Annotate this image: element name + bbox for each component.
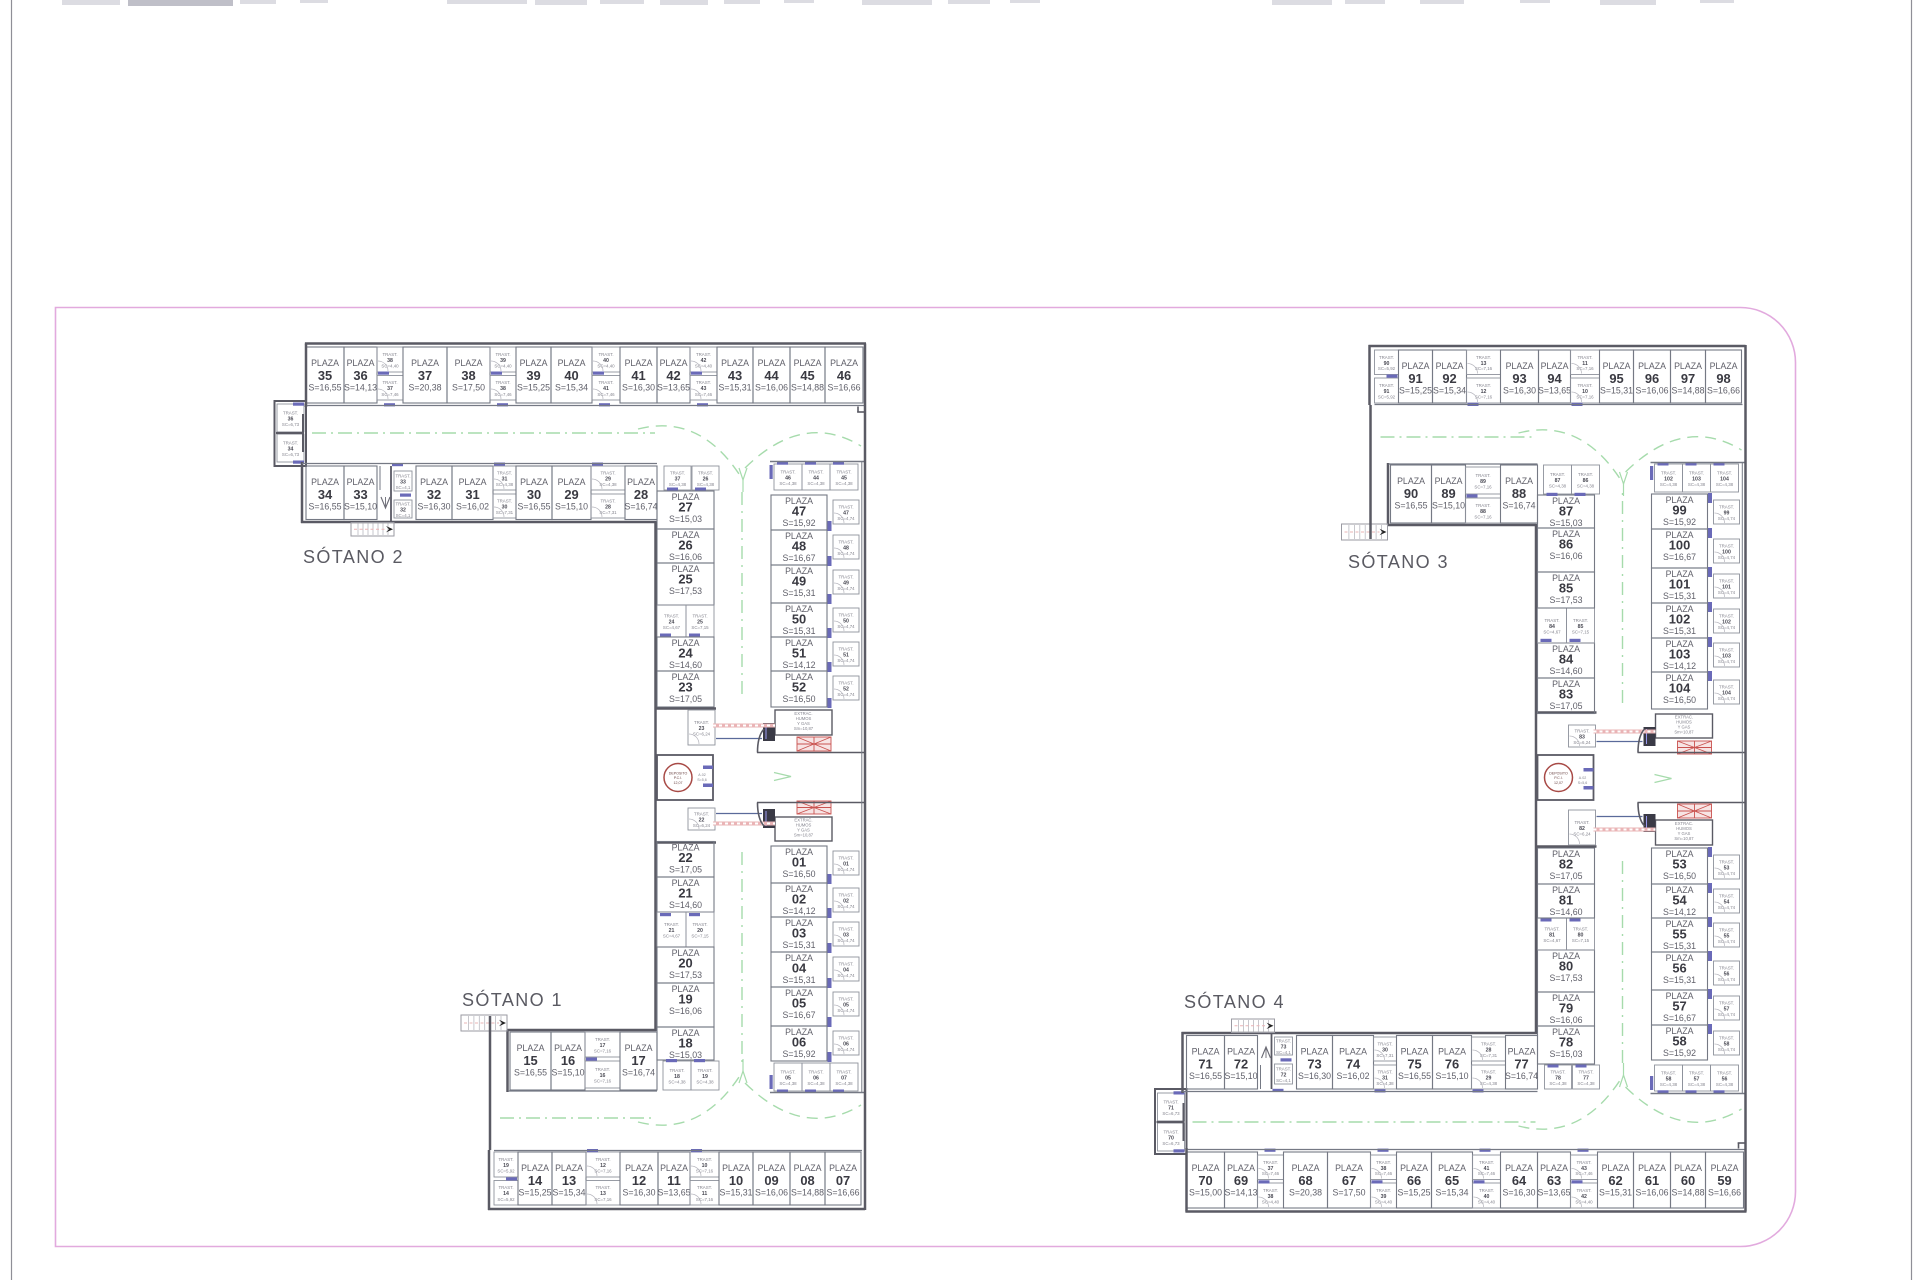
- svg-text:TRAST.: TRAST.: [697, 1157, 712, 1162]
- svg-text:S=16,30: S=16,30: [417, 502, 450, 512]
- svg-text:SC=4,67: SC=4,67: [663, 934, 681, 939]
- svg-text:SC=4,74: SC=4,74: [837, 1047, 855, 1052]
- svg-text:21: 21: [678, 886, 692, 901]
- svg-text:SC=4,1: SC=4,1: [1276, 1078, 1291, 1083]
- svg-text:TRAST.: TRAST.: [595, 1157, 610, 1162]
- svg-text:SC=4,38: SC=4,38: [835, 1081, 853, 1086]
- svg-text:SC=4,74: SC=4,74: [1718, 555, 1736, 560]
- svg-text:TRAST.: TRAST.: [1719, 966, 1734, 971]
- svg-text:SC=4,74: SC=4,74: [1718, 871, 1736, 876]
- svg-text:S=16,66: S=16,66: [1707, 386, 1740, 396]
- svg-text:SC=4,74: SC=4,74: [837, 586, 855, 591]
- svg-text:PLAZA: PLAZA: [1292, 1163, 1320, 1173]
- svg-text:47: 47: [792, 504, 806, 519]
- svg-text:104: 104: [1669, 681, 1691, 696]
- svg-text:PLAZA: PLAZA: [830, 358, 858, 368]
- svg-text:TRAST.: TRAST.: [1163, 1100, 1178, 1105]
- svg-text:S=16,66: S=16,66: [827, 383, 860, 393]
- svg-text:SC=7,31: SC=7,31: [1376, 1053, 1394, 1058]
- svg-text:S=13,65: S=13,65: [1537, 1188, 1570, 1198]
- svg-text:102: 102: [1669, 612, 1691, 627]
- svg-text:SC=4,74: SC=4,74: [1718, 590, 1736, 595]
- svg-text:99: 99: [1672, 503, 1686, 518]
- svg-text:62: 62: [1608, 1173, 1622, 1188]
- svg-text:58: 58: [1672, 1034, 1686, 1049]
- svg-text:S=17,53: S=17,53: [669, 586, 702, 596]
- svg-text:TRAST.: TRAST.: [838, 1036, 853, 1041]
- svg-text:SC=6,73: SC=6,73: [1162, 1141, 1180, 1146]
- svg-text:S=15,03: S=15,03: [1549, 518, 1582, 528]
- svg-text:PLAZA: PLAZA: [1638, 361, 1666, 371]
- svg-text:S=13,65: S=13,65: [657, 1188, 690, 1198]
- svg-text:TRAST.: TRAST.: [664, 614, 679, 619]
- svg-text:PLAZA: PLAZA: [758, 1163, 786, 1173]
- svg-text:SC=4,67: SC=4,67: [663, 625, 681, 630]
- svg-text:44: 44: [764, 368, 779, 383]
- svg-text:PLAZA: PLAZA: [347, 358, 375, 368]
- svg-text:SC=5,92: SC=5,92: [1378, 395, 1396, 400]
- svg-text:77: 77: [1514, 1057, 1528, 1072]
- svg-text:PLAZA: PLAZA: [1506, 361, 1534, 371]
- svg-text:SC=4,74: SC=4,74: [1718, 977, 1736, 982]
- svg-text:SC=4,74: SC=4,74: [837, 624, 855, 629]
- svg-text:74: 74: [1346, 1057, 1361, 1072]
- svg-text:SC=4,74: SC=4,74: [1718, 1047, 1736, 1052]
- svg-text:S=15,34: S=15,34: [1435, 1188, 1468, 1198]
- svg-text:S=16,06: S=16,06: [1635, 1188, 1668, 1198]
- svg-text:TRAST.: TRAST.: [1377, 1042, 1392, 1047]
- svg-text:TRAST.: TRAST.: [1719, 614, 1734, 619]
- svg-text:56: 56: [1672, 961, 1686, 976]
- svg-text:SC=7,15: SC=7,15: [1572, 630, 1590, 635]
- svg-text:S=17,53: S=17,53: [1549, 973, 1582, 983]
- svg-text:S=15,25: S=15,25: [1397, 1188, 1430, 1198]
- svg-text:S=16,74: S=16,74: [624, 502, 657, 512]
- svg-text:S=15,25: S=15,25: [1399, 386, 1432, 396]
- svg-text:S=16,74: S=16,74: [1502, 501, 1535, 511]
- svg-text:PLAZA: PLAZA: [347, 477, 375, 487]
- svg-text:80: 80: [1559, 959, 1573, 974]
- svg-text:13: 13: [562, 1173, 576, 1188]
- svg-text:PLAZA: PLAZA: [794, 1163, 822, 1173]
- svg-text:TRAST.: TRAST.: [600, 471, 615, 476]
- svg-text:PLAZA: PLAZA: [1674, 361, 1702, 371]
- svg-text:PLAZA: PLAZA: [1400, 1163, 1428, 1173]
- svg-text:SÓTANO 3: SÓTANO 3: [1348, 551, 1449, 572]
- svg-text:S=15,92: S=15,92: [782, 1049, 815, 1059]
- svg-text:S=17,53: S=17,53: [669, 970, 702, 980]
- svg-text:12,07: 12,07: [674, 781, 683, 785]
- svg-text:SC=4,38: SC=4,38: [1376, 1081, 1394, 1086]
- svg-text:TRAST.: TRAST.: [1481, 1042, 1496, 1047]
- svg-text:SC=4,74: SC=4,74: [1718, 939, 1736, 944]
- svg-text:SC=4,38: SC=4,38: [1660, 1082, 1678, 1087]
- svg-text:S=16,67: S=16,67: [782, 1010, 815, 1020]
- svg-text:TRAST.: TRAST.: [838, 962, 853, 967]
- svg-text:PLAZA: PLAZA: [521, 1163, 549, 1173]
- svg-text:59: 59: [1717, 1173, 1731, 1188]
- svg-text:73: 73: [1307, 1057, 1321, 1072]
- svg-text:S=14,60: S=14,60: [669, 660, 702, 670]
- svg-text:TRAST.: TRAST.: [1379, 383, 1394, 388]
- svg-text:TRAST.: TRAST.: [1550, 1070, 1565, 1075]
- svg-text:24: 24: [678, 646, 693, 661]
- svg-text:PLAZA: PLAZA: [1438, 1163, 1466, 1173]
- svg-text:S=15,31: S=15,31: [1600, 386, 1633, 396]
- svg-text:S=16,50: S=16,50: [782, 694, 815, 704]
- svg-text:PLAZA: PLAZA: [1603, 361, 1631, 371]
- svg-text:SC=4,38: SC=4,38: [1549, 484, 1567, 489]
- svg-text:TRAST.: TRAST.: [1577, 383, 1592, 388]
- svg-text:17: 17: [631, 1053, 645, 1068]
- svg-text:S=14,12: S=14,12: [1663, 661, 1696, 671]
- svg-text:P.C.I.: P.C.I.: [1554, 776, 1563, 780]
- svg-text:TRAST.: TRAST.: [838, 613, 853, 618]
- svg-text:TRAST.: TRAST.: [495, 352, 510, 357]
- svg-text:S=16,55: S=16,55: [308, 383, 341, 393]
- svg-text:TRAST.: TRAST.: [698, 471, 713, 476]
- svg-text:S=16,50: S=16,50: [1663, 695, 1696, 705]
- svg-text:89: 89: [1441, 486, 1455, 501]
- svg-text:TRAST.: TRAST.: [1717, 1071, 1732, 1076]
- svg-text:SC=4,1: SC=4,1: [1276, 1050, 1291, 1055]
- svg-text:25: 25: [678, 572, 692, 587]
- svg-text:PLAZA: PLAZA: [1397, 476, 1425, 486]
- svg-text:TRAST.: TRAST.: [283, 411, 298, 416]
- svg-text:S=15,25: S=15,25: [518, 1188, 551, 1198]
- svg-text:S=14,88: S=14,88: [791, 383, 824, 393]
- svg-text:S=17,05: S=17,05: [1549, 701, 1582, 711]
- svg-text:PLAZA: PLAZA: [1402, 361, 1430, 371]
- svg-text:SC=4,38: SC=4,38: [1716, 1082, 1734, 1087]
- svg-text:SC=4,38: SC=4,38: [1577, 484, 1595, 489]
- svg-text:PLAZA: PLAZA: [520, 358, 548, 368]
- svg-text:PLAZA: PLAZA: [1505, 476, 1533, 486]
- svg-text:SC=5,92: SC=5,92: [1378, 366, 1396, 371]
- svg-text:SC=4,74: SC=4,74: [837, 973, 855, 978]
- svg-text:S=15,31: S=15,31: [718, 383, 751, 393]
- svg-text:91: 91: [1408, 371, 1422, 386]
- svg-text:PLAZA: PLAZA: [1192, 1047, 1220, 1057]
- svg-text:38: 38: [461, 368, 475, 383]
- svg-text:SC=4,38: SC=4,38: [599, 482, 617, 487]
- svg-text:PLAZA: PLAZA: [558, 358, 586, 368]
- svg-text:02: 02: [792, 892, 806, 907]
- svg-text:55: 55: [1672, 927, 1686, 942]
- svg-text:36: 36: [353, 368, 367, 383]
- svg-text:S=15,10: S=15,10: [1224, 1071, 1257, 1081]
- svg-text:TRAST.: TRAST.: [1661, 471, 1676, 476]
- svg-text:PLAZA: PLAZA: [459, 477, 487, 487]
- svg-text:S=15,31: S=15,31: [1663, 591, 1696, 601]
- svg-text:51: 51: [792, 646, 806, 661]
- svg-text:S=15,25: S=15,25: [517, 383, 550, 393]
- svg-text:S=17,50: S=17,50: [452, 383, 485, 393]
- svg-text:SC=6,24: SC=6,24: [1573, 832, 1591, 837]
- svg-text:TRAST.: TRAST.: [838, 893, 853, 898]
- svg-text:TRAST.: TRAST.: [395, 474, 410, 479]
- svg-text:S=16,06: S=16,06: [755, 1188, 788, 1198]
- svg-text:37: 37: [418, 368, 432, 383]
- svg-text:72: 72: [1234, 1057, 1248, 1072]
- svg-text:PLAZA: PLAZA: [1339, 1047, 1367, 1057]
- svg-text:SC=4,1: SC=4,1: [396, 513, 411, 518]
- svg-text:TRAST.: TRAST.: [1475, 473, 1490, 478]
- svg-text:TRAST.: TRAST.: [497, 499, 512, 504]
- svg-text:S=16,30: S=16,30: [622, 383, 655, 393]
- svg-text:S=5,6: S=5,6: [697, 778, 707, 782]
- svg-text:S=14,13: S=14,13: [344, 383, 377, 393]
- svg-text:SC=7,46: SC=7,46: [494, 392, 512, 397]
- svg-text:88: 88: [1512, 486, 1526, 501]
- svg-text:TRAST.: TRAST.: [1719, 928, 1734, 933]
- svg-text:TRAST.: TRAST.: [780, 470, 795, 475]
- svg-text:TRAST.: TRAST.: [669, 1068, 684, 1073]
- svg-text:SC=6,24: SC=6,24: [693, 732, 711, 737]
- svg-text:S=15,31: S=15,31: [1599, 1188, 1632, 1198]
- svg-text:100: 100: [1669, 538, 1691, 553]
- svg-text:SC=7,16: SC=7,16: [1475, 366, 1493, 371]
- svg-text:S=20,38: S=20,38: [408, 383, 441, 393]
- svg-text:S=14,13: S=14,13: [1224, 1188, 1257, 1198]
- svg-text:95: 95: [1609, 371, 1623, 386]
- svg-text:S=16,55: S=16,55: [1398, 1071, 1431, 1081]
- svg-text:S=15,03: S=15,03: [669, 514, 702, 524]
- svg-text:TRAST.: TRAST.: [1573, 618, 1588, 623]
- svg-text:66: 66: [1407, 1173, 1421, 1188]
- svg-text:S=17,53: S=17,53: [1549, 595, 1582, 605]
- svg-text:TRAST.: TRAST.: [1578, 472, 1593, 477]
- svg-text:SC=7,16: SC=7,16: [1475, 395, 1493, 400]
- svg-text:TRAST.: TRAST.: [670, 471, 685, 476]
- svg-text:S=16,06: S=16,06: [1549, 1015, 1582, 1025]
- svg-text:TRAST.: TRAST.: [1479, 1188, 1494, 1193]
- svg-text:SC=7,16: SC=7,16: [1474, 485, 1492, 490]
- svg-text:SC=4,38: SC=4,38: [669, 482, 687, 487]
- svg-text:TRAST.: TRAST.: [495, 380, 510, 385]
- svg-text:TRAST.: TRAST.: [1577, 355, 1592, 360]
- svg-text:98: 98: [1716, 371, 1730, 386]
- svg-text:SC=7,46: SC=7,46: [1375, 1171, 1393, 1176]
- svg-text:S=14,88: S=14,88: [791, 1188, 824, 1198]
- svg-text:35: 35: [318, 368, 332, 383]
- svg-text:S=16,66: S=16,66: [1708, 1188, 1741, 1198]
- svg-text:TRAST.: TRAST.: [838, 856, 853, 861]
- svg-text:90: 90: [1404, 486, 1418, 501]
- svg-text:PLAZA: PLAZA: [517, 1043, 545, 1053]
- svg-text:33: 33: [353, 487, 367, 502]
- svg-text:TRAST.: TRAST.: [598, 380, 613, 385]
- svg-text:78: 78: [1559, 1035, 1573, 1050]
- svg-text:81: 81: [1559, 893, 1573, 908]
- svg-text:S=14,12: S=14,12: [782, 660, 815, 670]
- svg-text:40: 40: [564, 368, 578, 383]
- svg-text:DEPOSITO: DEPOSITO: [1549, 772, 1568, 776]
- svg-text:57: 57: [1672, 999, 1686, 1014]
- svg-text:TRAST.: TRAST.: [664, 922, 679, 927]
- svg-text:16: 16: [561, 1053, 575, 1068]
- svg-text:PLAZA: PLAZA: [520, 477, 548, 487]
- svg-text:SÓTANO 4: SÓTANO 4: [1184, 991, 1285, 1012]
- svg-text:TRAST.: TRAST.: [395, 502, 410, 507]
- svg-text:43: 43: [728, 368, 742, 383]
- svg-text:97: 97: [1681, 371, 1695, 386]
- svg-text:S=16,55: S=16,55: [514, 1068, 547, 1078]
- svg-text:TRAST.: TRAST.: [1719, 505, 1734, 510]
- svg-text:SC=4,74: SC=4,74: [1718, 516, 1736, 521]
- svg-text:PLAZA: PLAZA: [411, 358, 439, 368]
- svg-text:PLAZA: PLAZA: [1674, 1163, 1702, 1173]
- svg-text:TRAST.: TRAST.: [696, 380, 711, 385]
- svg-text:09: 09: [764, 1173, 778, 1188]
- svg-text:71: 71: [1198, 1057, 1212, 1072]
- svg-text:TRAST.: TRAST.: [1719, 1036, 1734, 1041]
- svg-text:SC=7,16: SC=7,16: [594, 1049, 612, 1054]
- svg-text:TRAST.: TRAST.: [498, 1157, 513, 1162]
- svg-text:PLAZA: PLAZA: [1711, 1163, 1739, 1173]
- svg-text:TRAST.: TRAST.: [1476, 383, 1491, 388]
- svg-text:26: 26: [678, 538, 692, 553]
- svg-text:68: 68: [1298, 1173, 1312, 1188]
- svg-text:TRAST.: TRAST.: [838, 575, 853, 580]
- svg-text:PLAZA: PLAZA: [625, 1043, 653, 1053]
- svg-text:TRAST.: TRAST.: [697, 1185, 712, 1190]
- svg-text:TRAST.: TRAST.: [1576, 1188, 1591, 1193]
- svg-text:TRAST.: TRAST.: [1717, 471, 1732, 476]
- svg-text:S=15,92: S=15,92: [1663, 517, 1696, 527]
- svg-text:TRAST.: TRAST.: [1578, 1070, 1593, 1075]
- svg-text:PLAZA: PLAZA: [1227, 1047, 1255, 1057]
- svg-text:PLAZA: PLAZA: [722, 1163, 750, 1173]
- svg-text:SC=7,31: SC=7,31: [599, 510, 617, 515]
- svg-text:S=15,31: S=15,31: [1663, 626, 1696, 636]
- svg-text:SC=4,74: SC=4,74: [1718, 1012, 1736, 1017]
- svg-text:TRAST.: TRAST.: [836, 1070, 851, 1075]
- svg-text:S=15,31: S=15,31: [782, 940, 815, 950]
- svg-text:34: 34: [318, 487, 333, 502]
- svg-text:TRAST.: TRAST.: [836, 470, 851, 475]
- svg-text:S=15,31: S=15,31: [1663, 941, 1696, 951]
- svg-text:TRAST.: TRAST.: [382, 352, 397, 357]
- svg-text:SC=4,40: SC=4,40: [381, 364, 399, 369]
- svg-text:S=15,10: S=15,10: [344, 502, 377, 512]
- svg-text:S=15,34: S=15,34: [555, 383, 588, 393]
- svg-text:SC=4,38: SC=4,38: [1480, 1081, 1498, 1086]
- svg-text:32: 32: [427, 487, 441, 502]
- svg-text:SC=7,16: SC=7,16: [1474, 515, 1492, 520]
- svg-text:SC=4,38: SC=4,38: [697, 482, 715, 487]
- svg-text:22: 22: [678, 850, 692, 865]
- svg-text:SC=4,38: SC=4,38: [696, 1080, 714, 1085]
- svg-text:TRAST.: TRAST.: [1377, 1070, 1392, 1075]
- svg-text:05: 05: [792, 996, 806, 1011]
- svg-text:PLAZA: PLAZA: [1638, 1163, 1666, 1173]
- svg-text:63: 63: [1547, 1173, 1561, 1188]
- svg-text:S=15,31: S=15,31: [1663, 975, 1696, 985]
- svg-text:S=16,06: S=16,06: [755, 383, 788, 393]
- svg-text:Sm=10,87: Sm=10,87: [1674, 730, 1694, 735]
- svg-text:PLAZA: PLAZA: [420, 477, 448, 487]
- svg-text:S=16,67: S=16,67: [1663, 1013, 1696, 1023]
- svg-text:PLAZA: PLAZA: [1438, 1047, 1466, 1057]
- svg-text:TRAST.: TRAST.: [808, 470, 823, 475]
- svg-text:S=16,30: S=16,30: [1298, 1071, 1331, 1081]
- svg-text:S=14,88: S=14,88: [1671, 386, 1704, 396]
- svg-text:50: 50: [792, 612, 806, 627]
- svg-text:TRAST.: TRAST.: [1719, 544, 1734, 549]
- svg-text:TRAST.: TRAST.: [692, 922, 707, 927]
- svg-text:54: 54: [1672, 893, 1687, 908]
- svg-text:23: 23: [678, 680, 692, 695]
- svg-text:S=15,00: S=15,00: [1189, 1188, 1222, 1198]
- svg-text:TRAST.: TRAST.: [283, 441, 298, 446]
- svg-text:S=17,50: S=17,50: [1332, 1188, 1365, 1198]
- svg-text:S=20,38: S=20,38: [1289, 1188, 1322, 1198]
- svg-text:S=15,31: S=15,31: [782, 975, 815, 985]
- svg-text:TRAST.: TRAST.: [1719, 579, 1734, 584]
- svg-text:S=16,55: S=16,55: [1189, 1071, 1222, 1081]
- svg-text:31: 31: [465, 487, 479, 502]
- svg-text:SC=4,74: SC=4,74: [837, 516, 855, 521]
- svg-text:PLAZA: PLAZA: [625, 1163, 653, 1173]
- svg-text:SC=4,38: SC=4,38: [779, 1081, 797, 1086]
- svg-text:P.C.I.: P.C.I.: [674, 776, 683, 780]
- svg-text:PLAZA: PLAZA: [555, 1163, 583, 1173]
- svg-text:S=14,60: S=14,60: [1549, 907, 1582, 917]
- svg-text:SC=7,15: SC=7,15: [1572, 938, 1590, 943]
- svg-text:87: 87: [1559, 504, 1573, 519]
- svg-text:S=14,60: S=14,60: [669, 900, 702, 910]
- svg-text:S=16,67: S=16,67: [782, 553, 815, 563]
- svg-text:SC=6,24: SC=6,24: [1573, 740, 1591, 745]
- svg-text:TRAST.: TRAST.: [1689, 471, 1704, 476]
- svg-text:S=14,12: S=14,12: [1663, 907, 1696, 917]
- svg-text:TRAST.: TRAST.: [838, 647, 853, 652]
- svg-text:PLAZA: PLAZA: [311, 477, 339, 487]
- svg-text:15: 15: [523, 1053, 537, 1068]
- svg-text:SC=4,38: SC=4,38: [1716, 482, 1734, 487]
- svg-text:61: 61: [1645, 1173, 1659, 1188]
- svg-text:70: 70: [1198, 1173, 1212, 1188]
- svg-text:PLAZA: PLAZA: [758, 358, 786, 368]
- svg-text:10: 10: [729, 1173, 743, 1188]
- svg-text:SC=4,40: SC=4,40: [1575, 1200, 1593, 1205]
- svg-text:60: 60: [1681, 1173, 1695, 1188]
- svg-text:S=16,06: S=16,06: [669, 1006, 702, 1016]
- svg-text:PLAZA: PLAZA: [1401, 1047, 1429, 1057]
- svg-text:PLAZA: PLAZA: [1335, 1163, 1363, 1173]
- svg-text:S=15,92: S=15,92: [1663, 1048, 1696, 1058]
- svg-text:SC=4,38: SC=4,38: [1660, 482, 1678, 487]
- svg-text:TRAST.: TRAST.: [1544, 618, 1559, 623]
- svg-text:76: 76: [1445, 1057, 1459, 1072]
- svg-text:PLAZA: PLAZA: [1710, 361, 1738, 371]
- svg-text:PLAZA: PLAZA: [1192, 1163, 1220, 1173]
- svg-text:49: 49: [792, 574, 806, 589]
- svg-text:S=17,05: S=17,05: [1549, 871, 1582, 881]
- svg-text:A.02: A.02: [698, 773, 705, 777]
- svg-text:92: 92: [1442, 371, 1456, 386]
- svg-text:SC=4,40: SC=4,40: [1262, 1200, 1280, 1205]
- svg-text:S=13,65: S=13,65: [1538, 386, 1571, 396]
- svg-text:S=16,06: S=16,06: [1549, 551, 1582, 561]
- svg-text:PLAZA: PLAZA: [625, 358, 653, 368]
- svg-text:Sm=10,87: Sm=10,87: [1674, 836, 1694, 841]
- svg-text:TRAST.: TRAST.: [1573, 927, 1588, 932]
- svg-text:TRAST.: TRAST.: [595, 1185, 610, 1190]
- svg-text:TRAST.: TRAST.: [1719, 648, 1734, 653]
- svg-text:SC=4,74: SC=4,74: [837, 904, 855, 909]
